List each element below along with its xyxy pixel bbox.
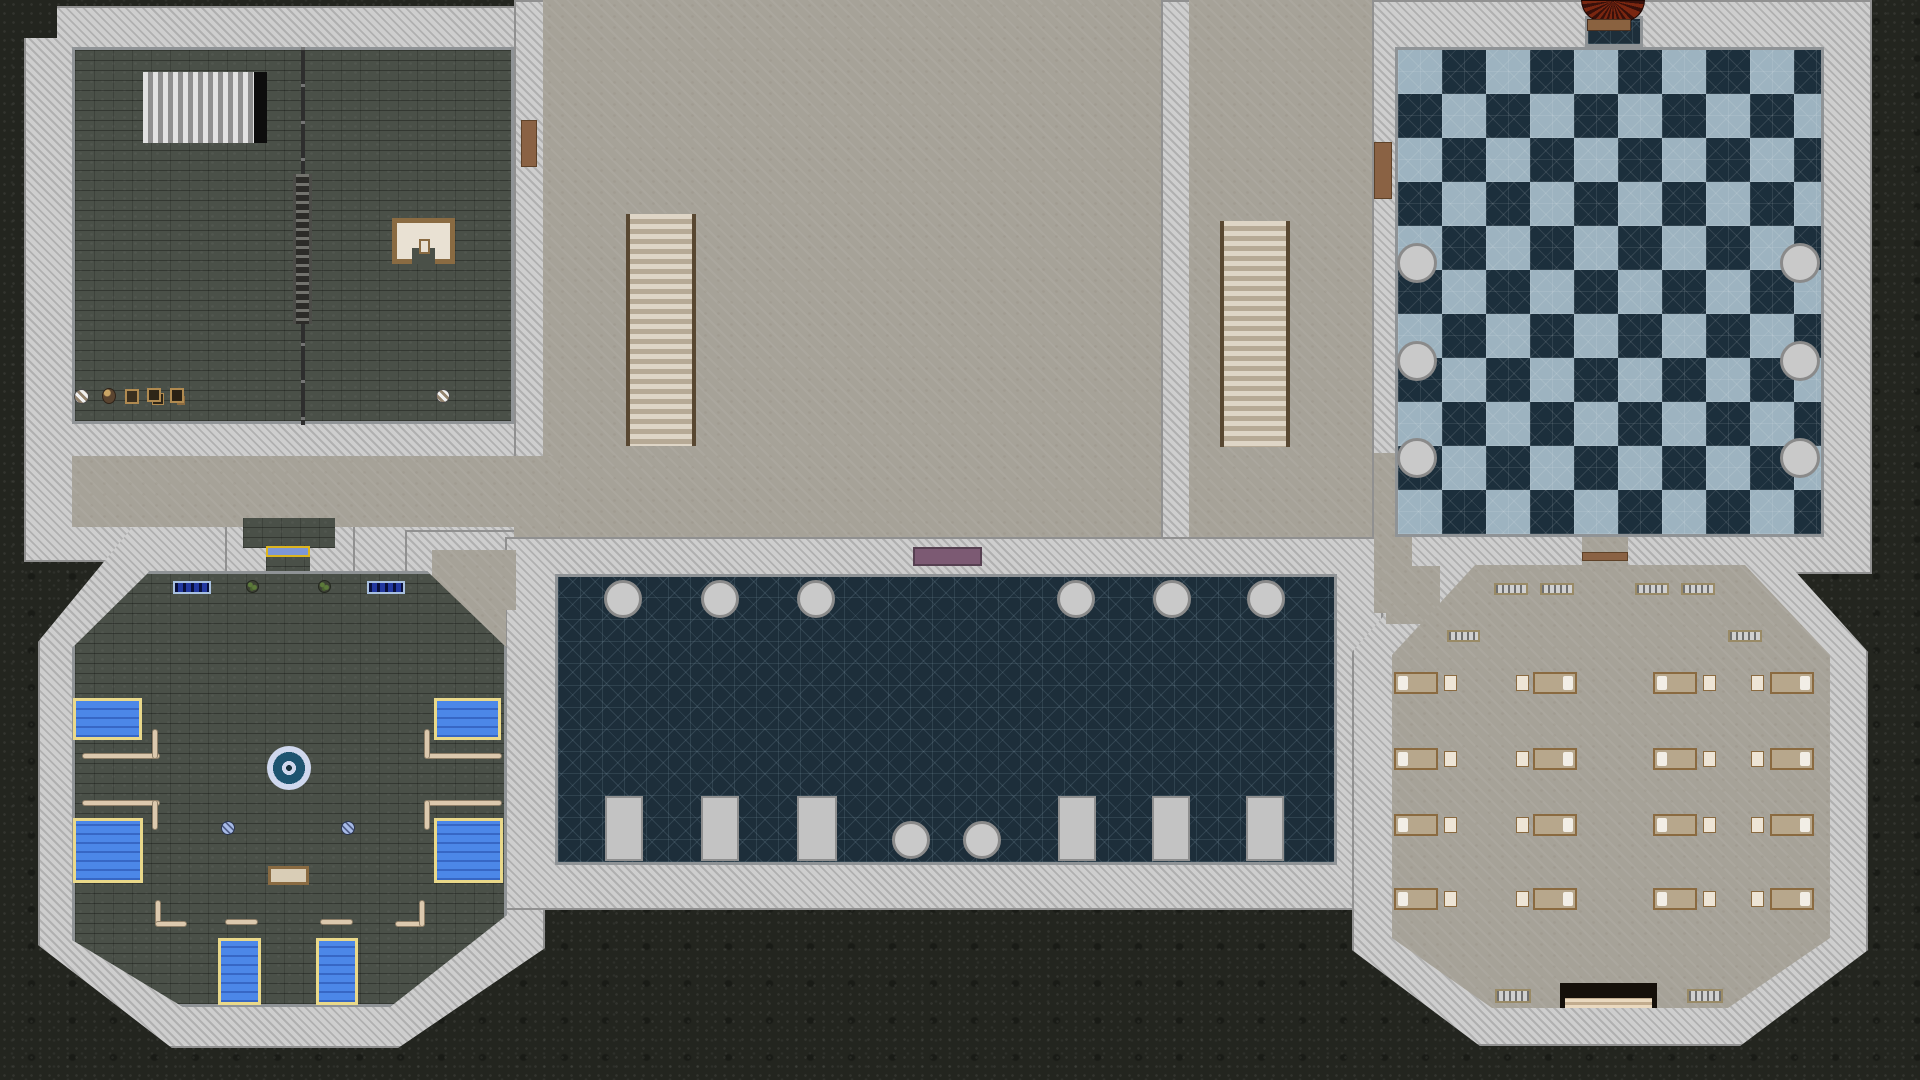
dark-hall-double-door[interactable] — [913, 547, 982, 566]
bed-pillow — [1563, 752, 1573, 766]
dark-hall-plinth — [1152, 796, 1190, 861]
radiator[interactable] — [1635, 583, 1669, 595]
drain-circle[interactable] — [221, 821, 235, 835]
ballroom-pillar — [1397, 243, 1437, 283]
nightstand[interactable] — [1751, 891, 1764, 907]
bath-pool-small[interactable] — [218, 938, 261, 1005]
radiator[interactable] — [1447, 630, 1480, 642]
floor-grate-pit — [254, 72, 267, 143]
bed[interactable] — [1653, 814, 1697, 836]
bed[interactable] — [1770, 672, 1814, 694]
ballroom-organ-bench[interactable] — [1587, 19, 1631, 31]
pool-rail — [424, 800, 502, 806]
radiator[interactable] — [1540, 583, 1574, 595]
pool-rail — [424, 800, 430, 830]
dark-hall-floor — [555, 574, 1337, 865]
pool-rail — [82, 800, 160, 806]
radiator[interactable] — [1495, 989, 1531, 1003]
radiator[interactable] — [1687, 989, 1723, 1003]
pool-rail — [225, 919, 258, 925]
dormitory-north-door[interactable] — [1582, 552, 1628, 561]
bed[interactable] — [1394, 672, 1438, 694]
bed-pillow — [1657, 676, 1667, 690]
bed-pillow — [1563, 818, 1573, 832]
bed[interactable] — [1394, 814, 1438, 836]
dark-hall-plinth — [1246, 796, 1284, 861]
potted-plant[interactable] — [318, 580, 331, 593]
bed[interactable] — [1770, 814, 1814, 836]
nightstand[interactable] — [1751, 817, 1764, 833]
bath-pool-small[interactable] — [316, 938, 358, 1005]
ballroom-west-door[interactable] — [1374, 142, 1392, 199]
bath-pool[interactable] — [73, 818, 143, 883]
bath-entry-mat[interactable] — [266, 546, 310, 557]
dark-hall-pillar — [604, 580, 642, 618]
bed-pillow — [1800, 752, 1810, 766]
radiator[interactable] — [1728, 630, 1762, 642]
dormitory-stairwell-steps — [1565, 998, 1652, 1008]
bed-pillow — [1398, 818, 1408, 832]
pool-rail — [152, 729, 158, 759]
bed[interactable] — [1653, 888, 1697, 910]
bed[interactable] — [1533, 748, 1577, 770]
bed[interactable] — [1770, 888, 1814, 910]
bath-table[interactable] — [268, 866, 309, 885]
nightstand[interactable] — [1444, 751, 1457, 767]
nightstand[interactable] — [1703, 675, 1716, 691]
nightstand[interactable] — [1703, 817, 1716, 833]
bed-pillow — [1657, 752, 1667, 766]
pool-rail — [424, 729, 430, 759]
bed[interactable] — [1533, 814, 1577, 836]
bed[interactable] — [1770, 748, 1814, 770]
bath-pool[interactable] — [434, 698, 501, 740]
bath-vent[interactable] — [367, 581, 405, 594]
ballroom-pillar — [1780, 243, 1820, 283]
railing-gate-bridge[interactable] — [293, 174, 312, 324]
great-hall-staircase[interactable] — [626, 214, 696, 446]
dark-hall-pillar — [1153, 580, 1191, 618]
nightstand[interactable] — [1516, 817, 1529, 833]
crate-icon[interactable] — [125, 389, 139, 404]
bed-pillow — [1398, 752, 1408, 766]
pot-icon[interactable] — [102, 388, 116, 404]
nightstand[interactable] — [1751, 675, 1764, 691]
storage-east-door[interactable] — [521, 120, 537, 167]
bath-pool[interactable] — [73, 698, 142, 740]
dark-hall-plinth — [1058, 796, 1096, 861]
shrine-pedestal[interactable] — [419, 239, 430, 254]
west-corridor-floor — [72, 456, 560, 527]
nightstand[interactable] — [1516, 891, 1529, 907]
ballroom-floor — [1395, 47, 1824, 537]
dark-hall-plinth — [797, 796, 837, 861]
drain-circle[interactable] — [341, 821, 355, 835]
potted-plant[interactable] — [246, 580, 259, 593]
radiator[interactable] — [1494, 583, 1528, 595]
bed-pillow — [1563, 892, 1573, 906]
nightstand[interactable] — [1703, 751, 1716, 767]
pool-rail — [424, 753, 502, 759]
ballroom-pillar — [1780, 341, 1820, 381]
bed[interactable] — [1533, 672, 1577, 694]
bed-pillow — [1800, 676, 1810, 690]
bed-pillow — [1563, 676, 1573, 690]
dark-corner-patch — [0, 0, 57, 38]
bed-pillow — [1398, 676, 1408, 690]
dark-hall-pillar — [963, 821, 1001, 859]
radiator[interactable] — [1681, 583, 1715, 595]
pool-rail — [320, 919, 353, 925]
pool-rail — [155, 921, 187, 927]
box-icon[interactable] — [170, 388, 184, 403]
bed[interactable] — [1653, 748, 1697, 770]
dark-hall-pillar — [1247, 580, 1285, 618]
bed[interactable] — [1394, 748, 1438, 770]
bed-pillow — [1800, 892, 1810, 906]
nightstand[interactable] — [1703, 891, 1716, 907]
bed-pillow — [1800, 818, 1810, 832]
east-corridor-staircase[interactable] — [1220, 221, 1290, 447]
dark-hall-plinth — [605, 796, 643, 861]
striped-ball-icon-2[interactable] — [436, 389, 450, 403]
pool-rail — [82, 753, 160, 759]
dark-hall-pillar — [892, 821, 930, 859]
nightstand[interactable] — [1444, 891, 1457, 907]
bed[interactable] — [1533, 888, 1577, 910]
pool-rail — [419, 900, 425, 927]
bed-pillow — [1657, 818, 1667, 832]
bath-pool[interactable] — [434, 818, 503, 883]
ballroom-pillar — [1397, 438, 1437, 478]
dark-hall-pillar — [797, 580, 835, 618]
bed-pillow — [1657, 892, 1667, 906]
bath-passage-floor-1 — [243, 518, 335, 548]
dark-hall-plinth — [701, 796, 739, 861]
stacked-crates-icon[interactable] — [147, 388, 161, 402]
nightstand[interactable] — [1516, 675, 1529, 691]
nightstand[interactable] — [1444, 675, 1457, 691]
striped-ball-icon[interactable] — [74, 389, 89, 404]
ballroom-pillar — [1780, 438, 1820, 478]
bed[interactable] — [1394, 888, 1438, 910]
bath-vent[interactable] — [173, 581, 211, 594]
ballroom-pillar — [1397, 341, 1437, 381]
dark-hall-pillar — [701, 580, 739, 618]
dungeon-map — [0, 0, 1920, 1080]
dark-hall-pillar — [1057, 580, 1095, 618]
pool-rail — [152, 800, 158, 830]
corridor-junction-floor — [514, 456, 560, 537]
nightstand[interactable] — [1751, 751, 1764, 767]
bed[interactable] — [1653, 672, 1697, 694]
nightstand[interactable] — [1444, 817, 1457, 833]
bed-pillow — [1398, 892, 1408, 906]
nightstand[interactable] — [1516, 751, 1529, 767]
floor-grate[interactable] — [143, 72, 254, 143]
central-fountain[interactable] — [267, 746, 311, 790]
